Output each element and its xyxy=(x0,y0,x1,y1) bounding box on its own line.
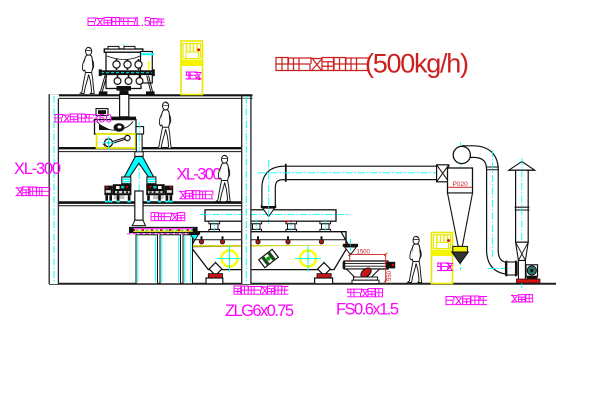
svg-text:550: 550 xyxy=(387,270,393,281)
svg-text:P020: P020 xyxy=(453,181,469,188)
svg-text:FS0.6x1.5: FS0.6x1.5 xyxy=(336,301,399,319)
svg-text:XL-300: XL-300 xyxy=(14,160,61,178)
svg-text:350: 350 xyxy=(92,112,112,126)
svg-text:(500kg/h): (500kg/h) xyxy=(365,49,469,79)
svg-text:ZLG6x0.75: ZLG6x0.75 xyxy=(225,302,294,320)
svg-text:1.5: 1.5 xyxy=(134,15,151,29)
svg-text:1500: 1500 xyxy=(357,250,371,256)
svg-text:XL-300: XL-300 xyxy=(177,166,222,184)
